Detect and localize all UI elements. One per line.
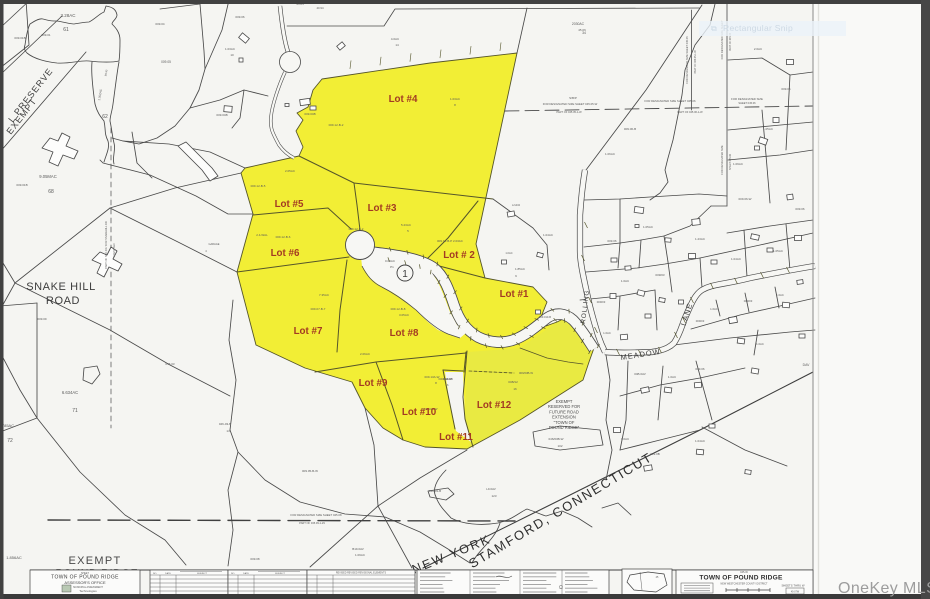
svg-text:009.01: 009.01 [41,33,51,37]
svg-text:NO.: NO. [231,573,235,575]
svg-text:1.05AC: 1.05AC [773,249,784,253]
svg-text:1.05AC: 1.05AC [763,127,774,131]
svg-text:009/03: 009/03 [744,299,753,303]
svg-text:PART OF 045.05-1-W: PART OF 045.05-1-W [694,50,697,74]
svg-text:009.08: 009.08 [250,557,260,561]
svg-text:009.06: 009.06 [781,87,791,91]
svg-text:EXEMPT: EXEMPT [68,555,121,567]
svg-text:FOR DESIGNATED SIZE SHEET 045.: FOR DESIGNATED SIZE SHEET 045.06 [644,99,695,103]
svg-text:⧉: ⧉ [711,24,717,33]
svg-text:123: 123 [491,494,496,498]
svg-text:1.06AC: 1.06AC [605,152,616,156]
svg-text:9.05MAC: 9.05MAC [39,174,56,179]
svg-text:1.0AC: 1.0AC [621,437,630,441]
svg-text:PART OF 045.09-1-29: PART OF 045.09-1-29 [299,521,325,525]
svg-text:04B.0AV: 04B.0AV [634,372,646,376]
svg-text:04B/12: 04B/12 [508,380,518,384]
svg-text:009.01B: 009.01B [16,183,27,187]
svg-text:72: 72 [7,438,13,444]
svg-text:ROAD: ROAD [46,295,80,307]
svg-text:Lot #12: Lot #12 [477,400,512,411]
svg-text:Lot #1: Lot #1 [500,289,529,300]
svg-text:SHEET 045.06: SHEET 045.06 [738,101,756,105]
svg-text:1: 1 [402,269,408,280]
svg-text:1.0AC: 1.0AC [603,331,611,335]
svg-text:1.05AC: 1.05AC [643,225,654,229]
svg-text:DATE: DATE [165,572,171,575]
svg-text:SNAKE HILL: SNAKE HILL [26,281,96,293]
svg-text:1.03AC: 1.03AC [225,47,236,51]
svg-text:1.23AC: 1.23AC [695,237,706,241]
svg-text:SUBJECT: SUBJECT [197,573,208,575]
svg-text:785AC: 785AC [2,423,14,428]
svg-text:PART OF SEC.04 / FOR SNAKEHILL: PART OF SEC.04 / FOR SNAKEHILL RD [104,221,108,269]
svg-text:046/03B-W: 046/03B-W [548,437,563,441]
svg-text:DATE: DATE [243,572,249,575]
svg-text:009.06-W: 009.06-W [738,197,751,201]
svg-text:FOR DESIGNATED SIZE SHEET 045.: FOR DESIGNATED SIZE SHEET 045.08 [290,513,341,517]
svg-text:1.856AC: 1.856AC [6,555,22,560]
svg-text:TOWN OF POUND RIDGE: TOWN OF POUND RIDGE [699,575,783,582]
svg-text:009.010-B: 009.010-B [539,315,551,319]
svg-text:046/0B: 046/0B [443,377,453,381]
svg-text:40.94: 40.94 [317,6,324,10]
svg-text:009.09: 009.09 [37,317,47,321]
svg-text:FOR DESIGNATED SIZE SHEET 045.: FOR DESIGNATED SIZE SHEET 045.05-W [543,102,598,106]
svg-text:102: 102 [557,444,562,448]
svg-text:2.05AC: 2.05AC [285,169,296,173]
svg-text:009.06: 009.06 [695,367,705,371]
svg-text:009.04B: 009.04B [216,113,227,117]
svg-text:NO.: NO. [153,573,157,575]
svg-text:1.04AC: 1.04AC [543,233,554,237]
svg-text:14: 14 [395,43,399,47]
svg-text:Lot #4: Lot #4 [389,94,418,105]
svg-text:GARAGE: GARAGE [208,242,219,246]
svg-text:009.05: 009.05 [161,60,171,64]
svg-text:PART OF 045.05-1-W: PART OF 045.05-1-W [556,110,582,114]
svg-text:Technologies: Technologies [79,589,97,593]
svg-text:CREST SEC: CREST SEC [113,243,116,257]
svg-text:2.4-WAL: 2.4-WAL [256,233,268,237]
svg-text:SHEETS THRU W: SHEETS THRU W [781,584,804,588]
svg-text:009/03: 009/03 [655,273,665,277]
svg-text:1.09AC: 1.09AC [733,162,744,166]
svg-text:3.28AC: 3.28AC [60,13,76,18]
svg-text:71: 71 [72,408,78,414]
svg-text:REVISED REVISED REVISIONAL ELE: REVISED REVISED REVISIONAL ELEMENTS [336,572,387,575]
svg-text:Ω: Ω [559,585,563,591]
svg-text:DAV: DAV [803,363,810,367]
svg-text:7.35AC: 7.35AC [319,293,330,297]
svg-text:NEW WESTCHESTER COUNTY DISTRIC: NEW WESTCHESTER COUNTY DISTRICT [721,583,769,586]
svg-text:Lot #9: Lot #9 [359,378,388,389]
svg-text:Lot #7: Lot #7 [294,326,323,337]
svg-text:046-03-B: 046-03-B [219,422,231,426]
svg-text:009.05-B-W: 009.05-B-W [302,469,318,473]
svg-text:009.12-B-6: 009.12-B-6 [276,235,291,239]
svg-text:Lot #8: Lot #8 [390,328,419,339]
svg-text:16: 16 [513,387,517,391]
svg-text:1.03AC: 1.03AC [450,97,461,101]
svg-text:61: 61 [63,27,69,33]
svg-text:2.0AC: 2.0AC [754,47,763,51]
svg-text:1.09AC: 1.09AC [355,553,366,557]
svg-text:PART OF 045.06-1-W: PART OF 045.06-1-W [677,110,703,114]
svg-text:009.12-B-5: 009.12-B-5 [251,184,266,188]
svg-text:Lot #11: Lot #11 [439,432,473,443]
svg-text:009.04: 009.04 [155,22,165,26]
svg-text:Lot #3: Lot #3 [368,203,397,214]
svg-text:S/B/P: S/B/P [569,96,577,100]
svg-text:046/03-B: 046/03-B [429,489,441,493]
svg-text:046.03: 046.03 [165,362,175,366]
svg-text:0.09AC: 0.09AC [385,259,396,263]
svg-text:009.12-B-8: 009.12-B-8 [391,307,406,311]
svg-text:009.12-B-P 2.03AC: 009.12-B-P 2.03AC [437,239,464,243]
svg-text:009.06: 009.06 [607,239,617,243]
svg-text:009/03: 009/03 [696,319,705,323]
svg-text:OneKey MLS: OneKey MLS [838,580,930,597]
svg-text:P1: P1 [390,265,394,269]
svg-text:ASSESSOR'S OFFICE: ASSESSOR'S OFFICE [64,580,106,585]
svg-text:3.05AC: 3.05AC [399,313,410,317]
svg-text:009.07-B-7: 009.07-B-7 [311,307,326,311]
svg-text:62: 62 [102,114,108,120]
svg-text:1.0AC: 1.0AC [710,307,718,311]
svg-text:1.0AC: 1.0AC [776,293,784,297]
svg-text:6.634AC: 6.634AC [62,390,78,395]
svg-text:Lot #6: Lot #6 [271,248,300,259]
svg-text:1.0AC: 1.0AC [756,342,764,346]
svg-text:FOR DESIGNATED SIZE SHEET 045.: FOR DESIGNATED SIZE SHEET 045.05 [685,36,689,84]
svg-text:Lot # 2: Lot # 2 [443,250,475,261]
svg-text:SUBJECT: SUBJECT [275,573,286,575]
svg-text:009/03B-W: 009/03B-W [519,371,533,375]
svg-text:009.06: 009.06 [795,207,805,211]
svg-text:1.04AC: 1.04AC [731,257,742,261]
svg-text:1.04AC: 1.04AC [695,439,706,443]
svg-text:POUND RIDGE": POUND RIDGE" [549,425,580,430]
svg-text:009.12-B-2: 009.12-B-2 [329,123,344,127]
svg-text:4.0AC: 4.0AC [391,37,400,41]
svg-text:1.0AC: 1.0AC [668,375,677,379]
svg-text:Lot #5: Lot #5 [275,199,304,210]
svg-text:Rectangular Snip: Rectangular Snip [723,23,793,33]
svg-text:1.0AC: 1.0AC [505,251,512,255]
svg-text:009.01B: 009.01B [14,36,25,40]
svg-text:1.85AC: 1.85AC [515,267,526,271]
svg-text:045-W: 045-W [740,570,748,574]
svg-text:009.06-B: 009.06-B [624,127,636,131]
svg-text:B19.0AV: B19.0AV [352,547,364,551]
svg-text:009.04B: 009.04B [304,112,315,116]
svg-text:009/03: 009/03 [597,300,606,304]
svg-text:FOR DESIGNATED SIZE: FOR DESIGNATED SIZE [731,97,763,101]
svg-text:Lot #10: Lot #10 [402,407,437,418]
svg-text:45-07W: 45-07W [791,591,800,594]
svg-text:2.06AC: 2.06AC [360,352,371,356]
svg-text:L/1434: L/1434 [512,203,520,207]
svg-text:68: 68 [48,189,54,195]
svg-text:10: 10 [230,53,234,57]
svg-text:009.06: 009.06 [235,15,245,19]
svg-text:SHEET 045.00: SHEET 045.00 [729,153,732,170]
svg-text:009.13A-W: 009.13A-W [424,375,439,379]
svg-text:5.23AC: 5.23AC [401,223,412,227]
svg-text:009.12-B-2: 009.12-B-2 [349,227,364,231]
svg-text:1.0AC: 1.0AC [621,279,630,283]
svg-text:009.0B: 009.0B [650,452,660,456]
svg-text:FOR DESIGNATED SIZE: FOR DESIGNATED SIZE [720,145,724,175]
svg-text:2030AC: 2030AC [572,22,585,26]
svg-text:45.06: 45.06 [578,28,586,32]
svg-text:14: 14 [226,429,230,433]
svg-text:L9.0AV: L9.0AV [486,487,496,491]
